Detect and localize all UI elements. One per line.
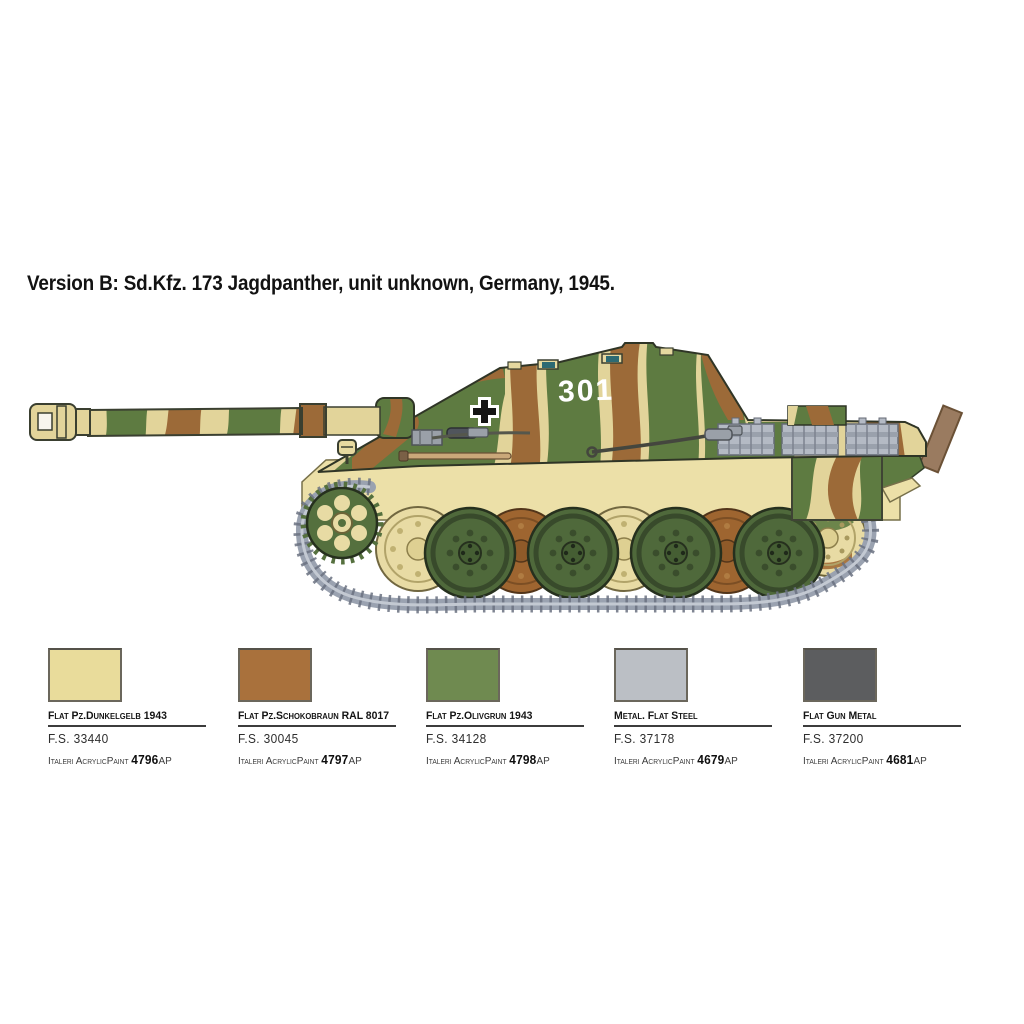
divider xyxy=(803,725,961,727)
paint-brand-line: Italeri AcrylicPaint 4798AP xyxy=(426,753,599,767)
paint-swatch xyxy=(803,648,877,702)
paint-code: 4679 xyxy=(697,753,724,767)
paint-swatch xyxy=(426,648,500,702)
divider xyxy=(426,725,584,727)
paint-brand-line: Italeri AcrylicPaint 4679AP xyxy=(614,753,787,767)
paint-fs-code: F.S. 34128 xyxy=(426,732,599,746)
paint-name: Metal. Flat Steel xyxy=(614,710,787,722)
brand-prefix: Italeri AcrylicPaint xyxy=(48,755,129,767)
divider xyxy=(48,725,206,727)
paint-code: 4796 xyxy=(131,753,158,767)
paint-column: Flat Pz.Olivgrun 1943 F.S. 34128 Italeri… xyxy=(426,648,608,767)
periscope-glass xyxy=(542,362,555,368)
paint-brand-line: Italeri AcrylicPaint 4796AP xyxy=(48,753,221,767)
paint-code-suffix: AP xyxy=(536,755,549,767)
cleaning-rods xyxy=(399,451,511,461)
brand-prefix: Italeri AcrylicPaint xyxy=(803,755,884,767)
paint-column: Metal. Flat Steel F.S. 37178 Italeri Acr… xyxy=(614,648,796,767)
paint-code: 4797 xyxy=(321,753,348,767)
divider xyxy=(238,725,396,727)
paint-name: Flat Gun Metal xyxy=(803,710,976,722)
paint-column: Flat Pz.Dunkelgelb 1943 F.S. 33440 Itale… xyxy=(48,648,230,767)
road-wheel-green xyxy=(425,508,515,598)
paint-code-suffix: AP xyxy=(913,755,926,767)
paint-code: 4798 xyxy=(509,753,536,767)
paint-fs-code: F.S. 30045 xyxy=(238,732,411,746)
paint-column: Flat Gun Metal F.S. 37200 Italeri Acryli… xyxy=(803,648,985,767)
paint-fs-code: F.S. 37178 xyxy=(614,732,787,746)
turret-number: 301 xyxy=(557,374,614,409)
instruction-sheet: Version B: Sd.Kfz. 173 Jagdpanther, unit… xyxy=(0,0,1024,1024)
fire-extinguisher xyxy=(705,429,732,440)
paint-column: Flat Pz.Schokobraun RAL 8017 F.S. 30045 … xyxy=(238,648,420,767)
paint-name: Flat Pz.Schokobraun RAL 8017 xyxy=(238,710,411,722)
paint-swatch xyxy=(238,648,312,702)
paint-name: Flat Pz.Dunkelgelb 1943 xyxy=(48,710,221,722)
paint-code-suffix: AP xyxy=(724,755,737,767)
road-wheel-green xyxy=(528,508,618,598)
paint-swatch xyxy=(48,648,122,702)
rear-stowage-box xyxy=(792,454,882,520)
rear-plank xyxy=(919,406,962,473)
divider xyxy=(614,725,772,727)
paint-swatch xyxy=(614,648,688,702)
paint-name: Flat Pz.Olivgrun 1943 xyxy=(426,710,599,722)
paint-brand-line: Italeri AcrylicPaint 4797AP xyxy=(238,753,411,767)
paint-fs-code: F.S. 37200 xyxy=(803,732,976,746)
main-gun xyxy=(30,396,414,444)
paint-brand-line: Italeri AcrylicPaint 4681AP xyxy=(803,753,976,767)
road-wheel-green xyxy=(631,508,721,598)
paint-code: 4681 xyxy=(886,753,913,767)
deck-stowage-box xyxy=(788,406,846,425)
brand-prefix: Italeri AcrylicPaint xyxy=(238,755,319,767)
paint-fs-code: F.S. 33440 xyxy=(48,732,221,746)
muzzle-brake xyxy=(30,404,90,440)
brand-prefix: Italeri AcrylicPaint xyxy=(614,755,695,767)
gun-barrel xyxy=(80,396,390,444)
tank-illustration: 301 xyxy=(0,0,1024,1024)
paint-code-suffix: AP xyxy=(158,755,171,767)
paint-code-suffix: AP xyxy=(348,755,361,767)
periscope-glass xyxy=(606,356,619,362)
brand-prefix: Italeri AcrylicPaint xyxy=(426,755,507,767)
